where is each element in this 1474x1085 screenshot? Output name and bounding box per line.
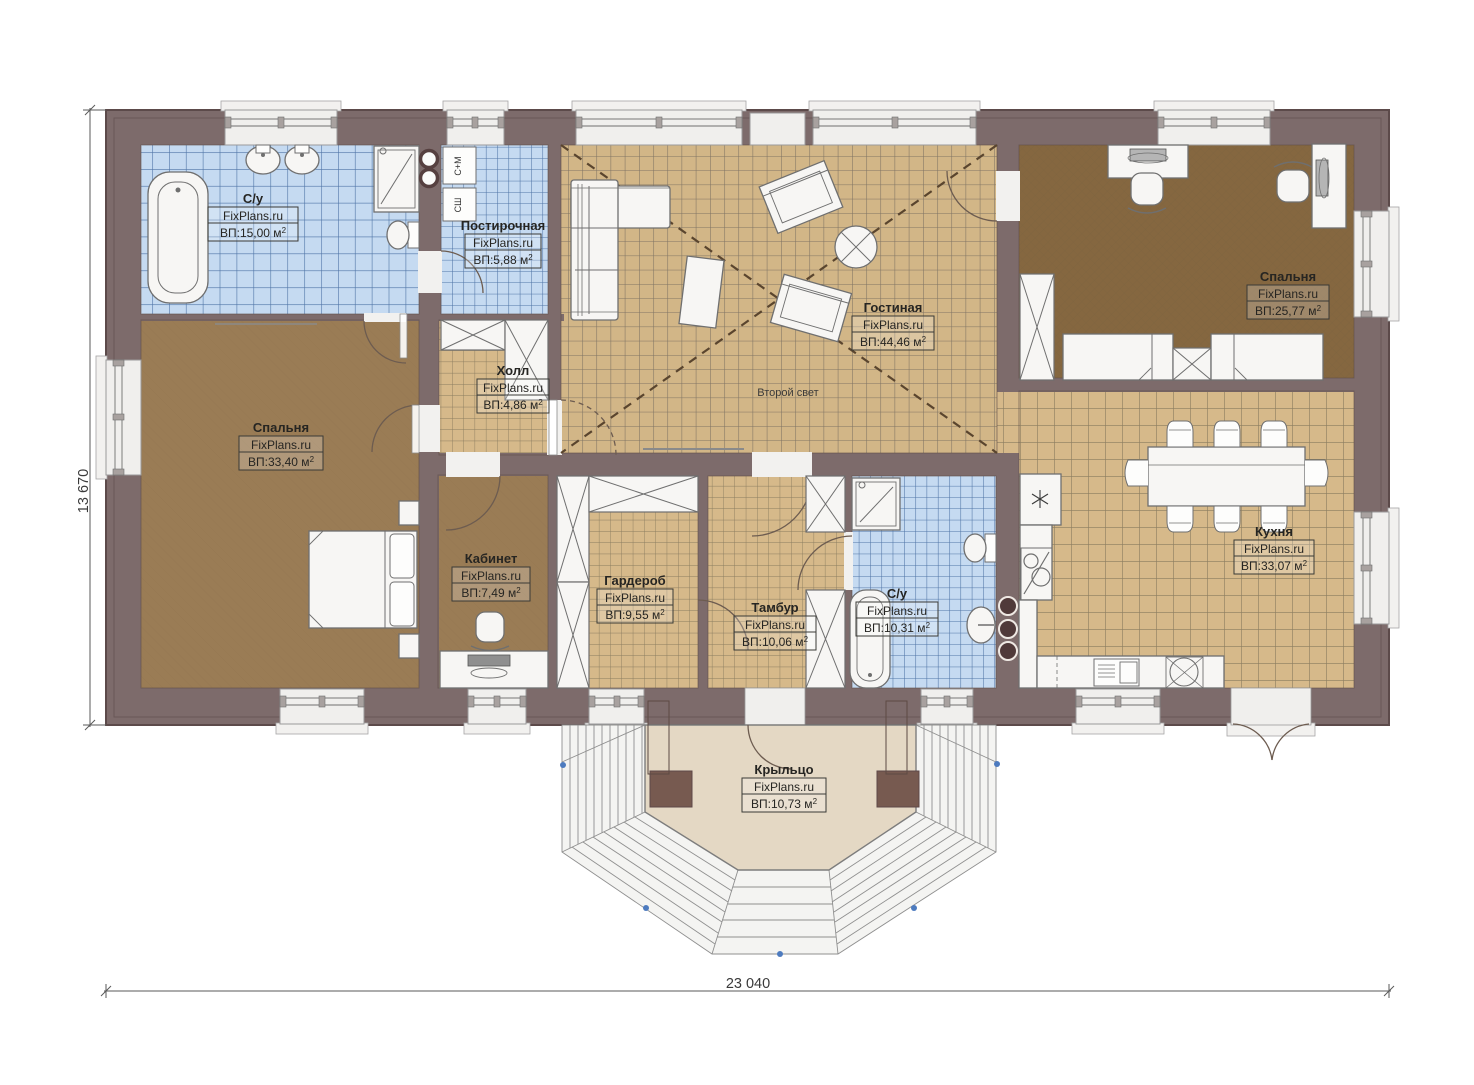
svg-text:Тамбур: Тамбур — [751, 600, 798, 615]
svg-text:ВП:33,07 м2: ВП:33,07 м2 — [1241, 559, 1308, 574]
svg-text:ВП:4,86 м2: ВП:4,86 м2 — [483, 398, 543, 413]
svg-text:FixPlans.ru: FixPlans.ru — [483, 381, 543, 395]
svg-text:FixPlans.ru: FixPlans.ru — [473, 236, 533, 250]
svg-text:ВП:5,88 м2: ВП:5,88 м2 — [473, 253, 533, 268]
svg-text:ВП:15,00 м2: ВП:15,00 м2 — [220, 226, 287, 241]
svg-text:ВП:44,46 м2: ВП:44,46 м2 — [860, 335, 927, 350]
svg-text:Постирочная: Постирочная — [461, 218, 545, 233]
svg-text:ВП:7,49 м2: ВП:7,49 м2 — [461, 586, 521, 601]
svg-text:Гардероб: Гардероб — [604, 573, 665, 588]
svg-text:С+М: С+М — [453, 156, 463, 175]
svg-text:ВП:10,06 м2: ВП:10,06 м2 — [742, 635, 809, 650]
svg-text:ВП:33,40 м2: ВП:33,40 м2 — [248, 455, 315, 470]
svg-text:Крыльцо: Крыльцо — [754, 762, 813, 777]
svg-text:FixPlans.ru: FixPlans.ru — [867, 604, 927, 618]
svg-text:Спальня: Спальня — [253, 420, 309, 435]
svg-text:FixPlans.ru: FixPlans.ru — [461, 569, 521, 583]
svg-text:FixPlans.ru: FixPlans.ru — [863, 318, 923, 332]
svg-text:Кабинет: Кабинет — [465, 551, 518, 566]
svg-text:СШ: СШ — [453, 198, 463, 213]
svg-text:С/у: С/у — [887, 586, 908, 601]
svg-text:Спальня: Спальня — [1260, 269, 1316, 284]
svg-text:23 040: 23 040 — [726, 976, 770, 992]
svg-text:FixPlans.ru: FixPlans.ru — [745, 618, 805, 632]
svg-text:С/у: С/у — [243, 191, 264, 206]
svg-text:Второй свет: Второй свет — [757, 387, 818, 399]
svg-text:ВП:25,77 м2: ВП:25,77 м2 — [1255, 304, 1322, 319]
svg-text:FixPlans.ru: FixPlans.ru — [251, 438, 311, 452]
svg-text:Гостиная: Гостиная — [864, 300, 923, 315]
svg-text:ВП:10,31 м2: ВП:10,31 м2 — [864, 621, 931, 636]
svg-text:ВП:10,73 м2: ВП:10,73 м2 — [751, 797, 818, 812]
svg-text:Кухня: Кухня — [1255, 524, 1293, 539]
svg-text:FixPlans.ru: FixPlans.ru — [754, 780, 814, 794]
svg-text:FixPlans.ru: FixPlans.ru — [223, 209, 283, 223]
svg-text:13 670: 13 670 — [76, 469, 92, 513]
svg-text:FixPlans.ru: FixPlans.ru — [1258, 287, 1318, 301]
svg-text:FixPlans.ru: FixPlans.ru — [605, 591, 665, 605]
svg-text:FixPlans.ru: FixPlans.ru — [1244, 542, 1304, 556]
svg-text:Холл: Холл — [497, 363, 530, 378]
svg-text:ВП:9,55 м2: ВП:9,55 м2 — [605, 608, 665, 623]
